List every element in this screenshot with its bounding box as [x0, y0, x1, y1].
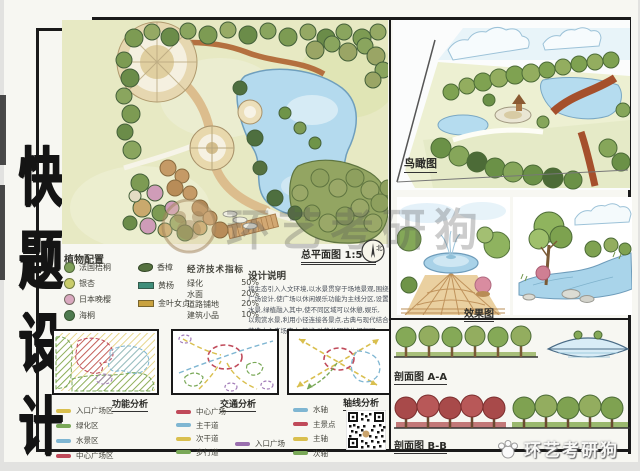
plant-icon	[138, 282, 154, 289]
plant-icon	[64, 294, 75, 305]
section-aa-drawing	[392, 322, 632, 368]
plant-legend-item: 香樟	[138, 262, 190, 273]
description-line: 水景,绿植融入其中,使不同区域可以休憩,娱乐,	[248, 305, 396, 315]
legend-item: 次干道	[176, 433, 226, 444]
plant-icon	[138, 263, 153, 272]
watermark-bottom-right: 环艺考研狗	[496, 436, 619, 461]
legend-item: 主干道	[176, 420, 226, 431]
birdseye-label: 鸟瞰图	[404, 155, 437, 173]
section-bb-drawing	[392, 386, 632, 438]
functional-legend: 入口广场区 绿化区 水景区 中心广场区	[56, 405, 114, 461]
section-bb-label: 剖面图 B-B	[394, 437, 447, 454]
effect-view-fountain	[397, 197, 510, 315]
legend-swatch	[293, 451, 308, 455]
watermark-text: 环艺考研狗	[524, 436, 619, 461]
legend-item: 入口广场区	[56, 405, 114, 416]
legend-item: 主景点	[293, 419, 336, 430]
plant-legend-item: 金叶女贞	[138, 298, 190, 309]
plant-legend-item: 黄杨	[138, 280, 190, 291]
traffic-legend: 中心广场 主干道 次干道 步行道	[176, 406, 226, 458]
plant-icon	[64, 310, 75, 321]
section-aa-label: 剖面图 A-A	[394, 368, 447, 385]
legend-item: 步行道	[176, 447, 226, 458]
axis-analysis-title: 轴线分析	[343, 396, 379, 411]
description-line: 广场设计,使广场以休闲娱乐功能为主线分区,设置	[248, 294, 396, 304]
legend-item: 中心广场	[176, 406, 226, 417]
legend-swatch	[235, 442, 250, 446]
design-description: 设计说明 将生态引入人文环境,以水景贯穿于场地景观,围绕 广场设计,使广场以休闲…	[248, 268, 396, 336]
axis-analysis-diagram	[287, 329, 391, 395]
description-title: 设计说明	[248, 268, 396, 282]
north-arrow-icon: 北	[360, 238, 386, 264]
legend-swatch	[56, 454, 71, 458]
functional-analysis-title: 功能分析	[112, 397, 148, 412]
plant-legend-item: 银杏	[64, 278, 111, 289]
legend-item: 水景区	[56, 435, 114, 446]
legend-swatch	[56, 439, 71, 443]
effect-label: 效果图	[464, 305, 494, 322]
legend-swatch	[176, 410, 191, 414]
plant-legend-col2: 香樟 黄杨 金叶女贞	[138, 262, 190, 309]
effect-view-stream	[513, 197, 632, 315]
paw-icon	[496, 437, 520, 461]
legend-item: 入口广场	[235, 438, 285, 449]
plant-icon	[64, 262, 75, 273]
plant-icon	[138, 300, 154, 307]
divider-sections	[391, 318, 630, 320]
design-board: 快 题 设 计	[0, 0, 640, 471]
legend-item: 中心广场区	[56, 450, 114, 461]
legend-item: 主轴	[293, 433, 336, 444]
legend-swatch	[176, 450, 191, 454]
legend-swatch	[56, 409, 71, 413]
legend-swatch	[176, 423, 191, 427]
functional-analysis-diagram	[52, 329, 159, 395]
description-line: 将生态引入人文环境,以水景贯穿于场地景观,围绕	[248, 284, 396, 294]
svg-text:北: 北	[376, 244, 383, 252]
legend-swatch	[293, 408, 308, 412]
legend-swatch	[293, 437, 308, 441]
plant-legend-item: 海桐	[64, 310, 111, 321]
legend-swatch	[56, 424, 71, 428]
plant-legend-col1: 法国梧桐 银杏 日本晚樱 海桐	[64, 262, 111, 321]
legend-item: 水轴	[293, 404, 336, 415]
plant-icon	[64, 278, 75, 289]
qr-code	[346, 410, 386, 450]
legend-item: 绿化区	[56, 420, 114, 431]
legend-item: 次轴	[293, 448, 336, 459]
scan-artifact	[0, 185, 5, 280]
plant-legend-item: 日本晚樱	[64, 294, 111, 305]
legend-swatch	[176, 437, 191, 441]
scan-artifact	[0, 95, 6, 165]
legend-swatch	[293, 422, 308, 426]
traffic-analysis-diagram	[171, 329, 279, 395]
description-line: 以观赏水景,利用小径连接各景点,古典与现代结合,	[248, 315, 396, 325]
master-plan-drawing	[62, 20, 388, 244]
axis-legend: 水轴 主景点 主轴 次轴	[293, 404, 336, 459]
plant-legend-item: 法国梧桐	[64, 262, 111, 273]
